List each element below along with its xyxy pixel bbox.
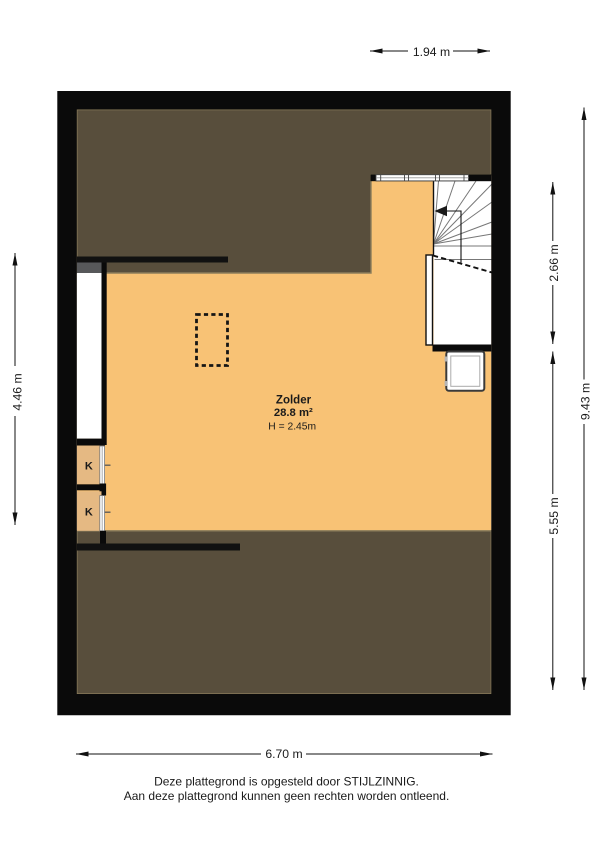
svg-text:Aan deze plattegrond kunnen ge: Aan deze plattegrond kunnen geen rechten…	[124, 789, 450, 803]
svg-text:6.70 m: 6.70 m	[265, 747, 302, 761]
svg-text:Zolder: Zolder	[276, 394, 312, 406]
svg-text:9.43 m: 9.43 m	[578, 383, 592, 420]
svg-text:1.94 m: 1.94 m	[413, 45, 450, 59]
svg-text:5.55 m: 5.55 m	[547, 497, 561, 534]
svg-text:Deze plattegrond is opgesteld: Deze plattegrond is opgesteld door STIJL…	[154, 775, 419, 789]
svg-text:28.8 m²: 28.8 m²	[274, 407, 313, 419]
svg-text:H = 2.45m: H = 2.45m	[268, 422, 316, 433]
svg-text:K: K	[85, 507, 93, 519]
svg-text:4.46 m: 4.46 m	[10, 373, 24, 410]
svg-text:K: K	[85, 461, 93, 473]
svg-text:2.66 m: 2.66 m	[547, 244, 561, 281]
